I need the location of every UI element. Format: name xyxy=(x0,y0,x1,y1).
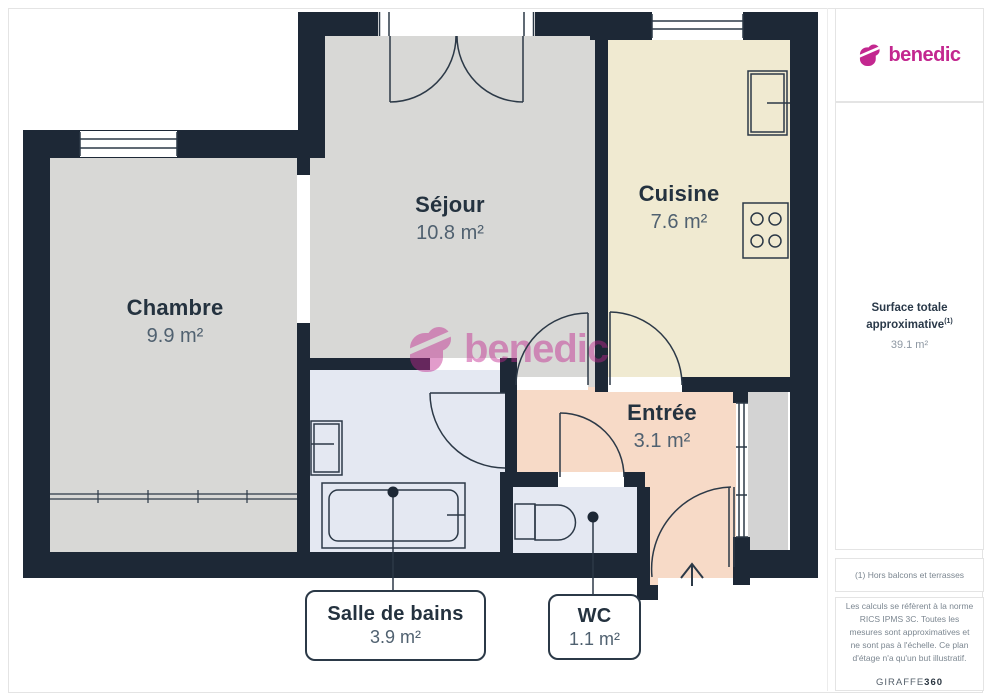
door-balcony xyxy=(380,12,534,102)
room-label-cuisine: Cuisine 7.6 m² xyxy=(639,181,720,234)
leader-dots xyxy=(388,487,599,523)
window-cuisine xyxy=(652,14,743,38)
plan-linework xyxy=(0,0,990,700)
entrance-arrow-icon xyxy=(681,564,703,586)
door-sejour xyxy=(516,313,588,385)
stove-icon xyxy=(743,203,788,258)
room-label-entree: Entrée 3.1 m² xyxy=(627,400,697,453)
window-chambre xyxy=(80,132,177,156)
leader-lines xyxy=(393,492,593,594)
bathroom-sink-icon xyxy=(311,421,342,475)
door-wc xyxy=(560,413,624,477)
room-label-sejour: Séjour 10.8 m² xyxy=(415,192,485,245)
wardrobe-line xyxy=(50,490,297,503)
door-cuisine xyxy=(610,312,682,385)
counter-icon xyxy=(748,71,790,135)
floor-plan-page: benedic Chambre 9.9 m² Séjour 10.8 m² Cu… xyxy=(0,0,990,700)
room-label-chambre: Chambre 9.9 m² xyxy=(127,295,224,348)
toilet-icon xyxy=(515,504,575,540)
window-entree-bay xyxy=(736,403,748,537)
callout-salle-de-bains: Salle de bains 3.9 m² xyxy=(305,590,486,661)
callout-wc: WC 1.1 m² xyxy=(548,594,641,660)
door-salle-de-bains xyxy=(430,393,505,468)
